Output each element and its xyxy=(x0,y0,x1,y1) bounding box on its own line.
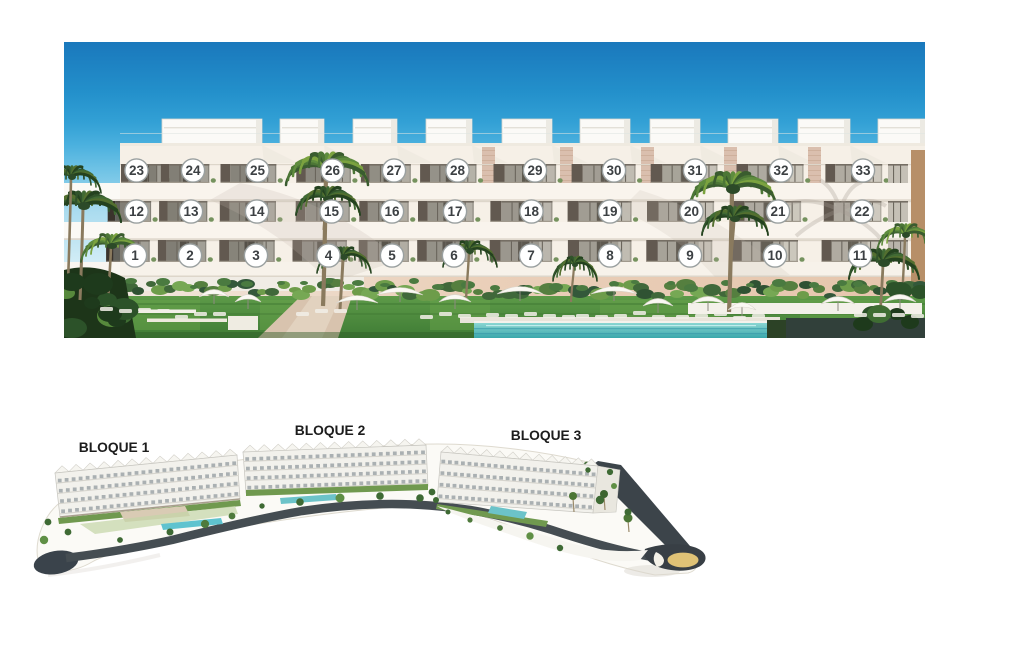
svg-text:3: 3 xyxy=(252,248,260,263)
svg-text:25: 25 xyxy=(250,163,266,178)
svg-text:8: 8 xyxy=(606,248,614,263)
svg-text:14: 14 xyxy=(249,204,265,219)
svg-text:12: 12 xyxy=(129,204,144,219)
svg-text:BLOQUE 3: BLOQUE 3 xyxy=(511,428,582,443)
svg-text:BLOQUE 1: BLOQUE 1 xyxy=(79,440,150,455)
svg-text:32: 32 xyxy=(773,163,788,178)
svg-text:31: 31 xyxy=(687,163,703,178)
svg-text:27: 27 xyxy=(386,163,401,178)
svg-text:18: 18 xyxy=(524,204,540,219)
svg-text:33: 33 xyxy=(855,163,871,178)
svg-text:20: 20 xyxy=(684,204,699,219)
svg-text:9: 9 xyxy=(686,248,694,263)
svg-text:22: 22 xyxy=(854,204,869,219)
svg-text:21: 21 xyxy=(770,204,786,219)
svg-text:26: 26 xyxy=(325,163,341,178)
svg-text:28: 28 xyxy=(450,163,466,178)
svg-text:30: 30 xyxy=(606,163,621,178)
svg-text:4: 4 xyxy=(325,248,333,263)
svg-text:7: 7 xyxy=(527,248,535,263)
svg-text:24: 24 xyxy=(185,163,201,178)
svg-text:6: 6 xyxy=(450,248,458,263)
svg-text:23: 23 xyxy=(129,163,145,178)
svg-text:10: 10 xyxy=(767,248,782,263)
svg-text:15: 15 xyxy=(324,204,340,219)
svg-text:13: 13 xyxy=(183,204,199,219)
svg-text:5: 5 xyxy=(388,248,396,263)
svg-text:BLOQUE 2: BLOQUE 2 xyxy=(295,423,366,438)
svg-text:17: 17 xyxy=(447,204,462,219)
svg-text:11: 11 xyxy=(853,248,868,263)
svg-text:1: 1 xyxy=(131,248,139,263)
svg-text:19: 19 xyxy=(602,204,617,219)
svg-text:29: 29 xyxy=(527,163,542,178)
svg-text:2: 2 xyxy=(186,248,194,263)
svg-text:16: 16 xyxy=(384,204,400,219)
